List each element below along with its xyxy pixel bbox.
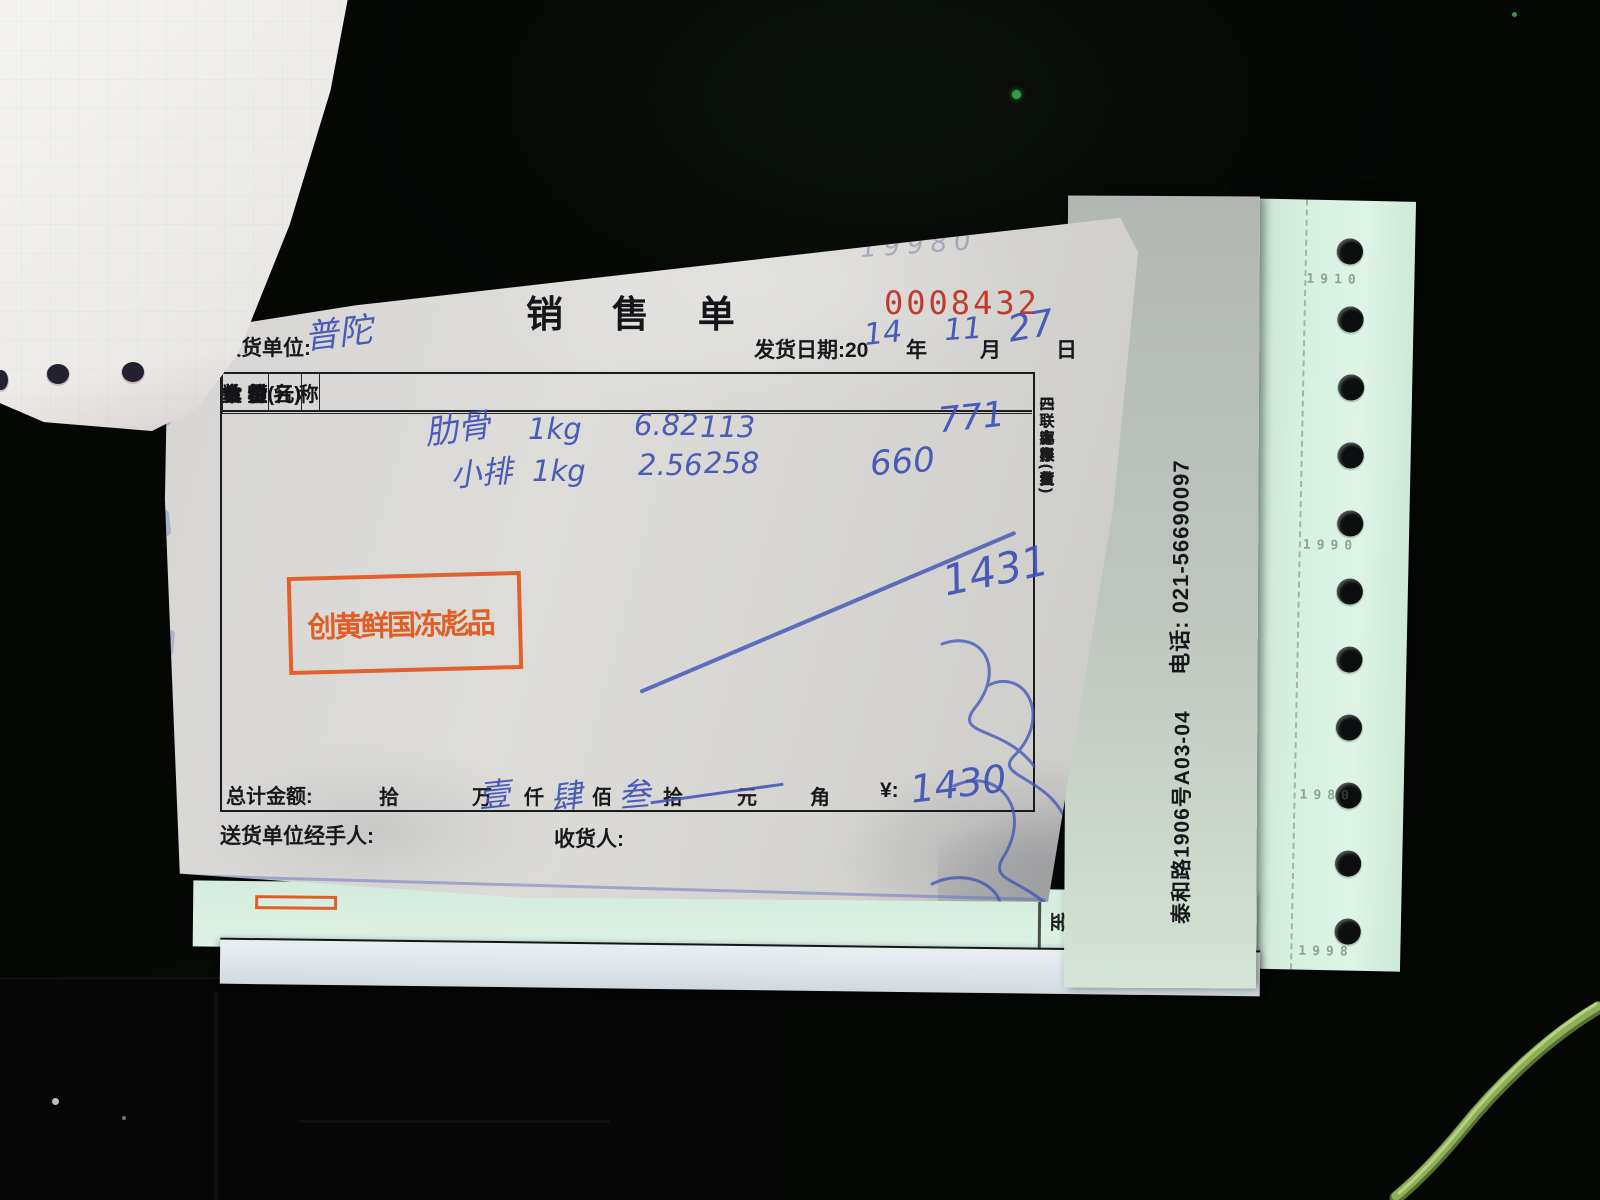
ship-date-label: 发货日期:20 xyxy=(754,334,868,364)
perforation-line xyxy=(1290,200,1308,970)
faint-print-number: 1910 xyxy=(1306,272,1362,288)
vendor-address: 泰和路1906号A03-04 xyxy=(1165,687,1192,947)
sprocket-hole xyxy=(1338,374,1365,401)
dust-speck xyxy=(122,1116,126,1120)
total-row: 总计金额: 拾 万 仟 佰 拾 元 角 壹 肆 叁 ¥: 1430 xyxy=(222,772,1032,812)
sprocket-hole xyxy=(1337,238,1364,265)
sprocket-hole xyxy=(1337,510,1364,537)
vendor-phone: 电话: 021-56690097 xyxy=(1162,407,1190,727)
day-char: 日 xyxy=(1056,334,1077,364)
item-price-handwritten: 258 xyxy=(704,446,759,480)
digit-bai-handwritten: 叁 xyxy=(616,769,652,818)
sprocket-hole xyxy=(1335,850,1362,877)
faint-print-number: 1990 xyxy=(1303,538,1359,554)
punch-hole xyxy=(122,362,144,382)
item-amount-handwritten: 660 xyxy=(869,440,937,484)
date-month-handwritten: 11 xyxy=(943,311,984,349)
item-qty-handwritten: 2.56 xyxy=(638,448,703,482)
unit-qian: 仟 xyxy=(524,781,544,810)
stamp-fragment-on-copy xyxy=(255,895,337,910)
floor-edge-line xyxy=(214,992,218,1200)
floor-edge-line-2 xyxy=(300,1120,610,1123)
item-price-handwritten: 113 xyxy=(700,410,755,444)
sprocket-hole xyxy=(1336,714,1363,741)
item-qty-handwritten: 6.82 xyxy=(634,408,699,442)
currency-label: ¥: xyxy=(880,779,899,803)
photo-scene: 1910 1990 1980 1998 金 ( 电话: 021-56690097… xyxy=(0,0,1600,1200)
unit-yuan: 元 xyxy=(737,781,757,810)
stamp-line-2: 黄 国 彪 xyxy=(333,600,476,646)
item-name-handwritten: 肋骨 xyxy=(421,398,493,455)
total-label: 总计金额: xyxy=(226,780,313,809)
copy-note-4: 四联记账(黄) xyxy=(1036,396,1057,495)
date-year-handwritten: 14 xyxy=(862,314,904,353)
table-row xyxy=(222,374,1032,414)
unit-shi: 拾 xyxy=(663,781,683,810)
vendor-stamp: 创 鲜 冻 品 黄 国 彪 xyxy=(287,571,523,675)
item-name-handwritten: 小排 xyxy=(448,445,514,495)
handler-label: 送货单位经手人: xyxy=(220,820,374,850)
sales-receipt: 19980 销 售 单 0008432 收货单位: 普陀 发货日期:20 14 … xyxy=(158,210,1148,916)
green-cable xyxy=(1382,952,1600,1200)
unit-shi-wan: 拾 xyxy=(379,781,399,810)
item-unit-handwritten: 1kg xyxy=(532,454,586,488)
faint-print-number: 1980 xyxy=(1299,788,1355,804)
sprocket-hole xyxy=(1334,918,1361,945)
receipt-title: 销 售 单 xyxy=(526,284,753,338)
sprocket-hole xyxy=(1337,442,1364,469)
digit-wan-handwritten: 壹 xyxy=(476,768,513,817)
green-speck xyxy=(1512,12,1517,17)
punch-hole xyxy=(47,364,69,384)
item-unit-handwritten: 1kg xyxy=(528,412,582,446)
dust-speck xyxy=(52,1098,59,1105)
sprocket-hole xyxy=(1336,646,1363,673)
faint-print-number: 1998 xyxy=(1298,944,1354,960)
cell xyxy=(222,374,223,413)
unit-jiao: 角 xyxy=(810,781,830,810)
unit-bai: 佰 xyxy=(592,781,612,810)
date-day-handwritten: 27 xyxy=(1005,302,1057,350)
digit-qian-handwritten: 肆 xyxy=(547,770,585,820)
year-char: 年 xyxy=(906,334,927,364)
sprocket-hole xyxy=(1337,578,1364,605)
green-led-dot xyxy=(1012,90,1021,99)
items-table: 食 材 名 称 单 位 数 量 单 价(元) 金 额(元) 肋骨 1kg 6.8… xyxy=(220,372,1035,812)
month-char: 月 xyxy=(980,334,1001,364)
receiver-label: 收货人: xyxy=(554,823,624,853)
dark-floor-panel xyxy=(0,978,775,1200)
sprocket-hole xyxy=(1337,306,1364,333)
copies-note-column: 一联存根(白) 二联库存(红) 三联客户(蓝) 四联记账(黄) xyxy=(1034,396,1058,786)
item-amount-handwritten: 771 xyxy=(936,395,1007,442)
